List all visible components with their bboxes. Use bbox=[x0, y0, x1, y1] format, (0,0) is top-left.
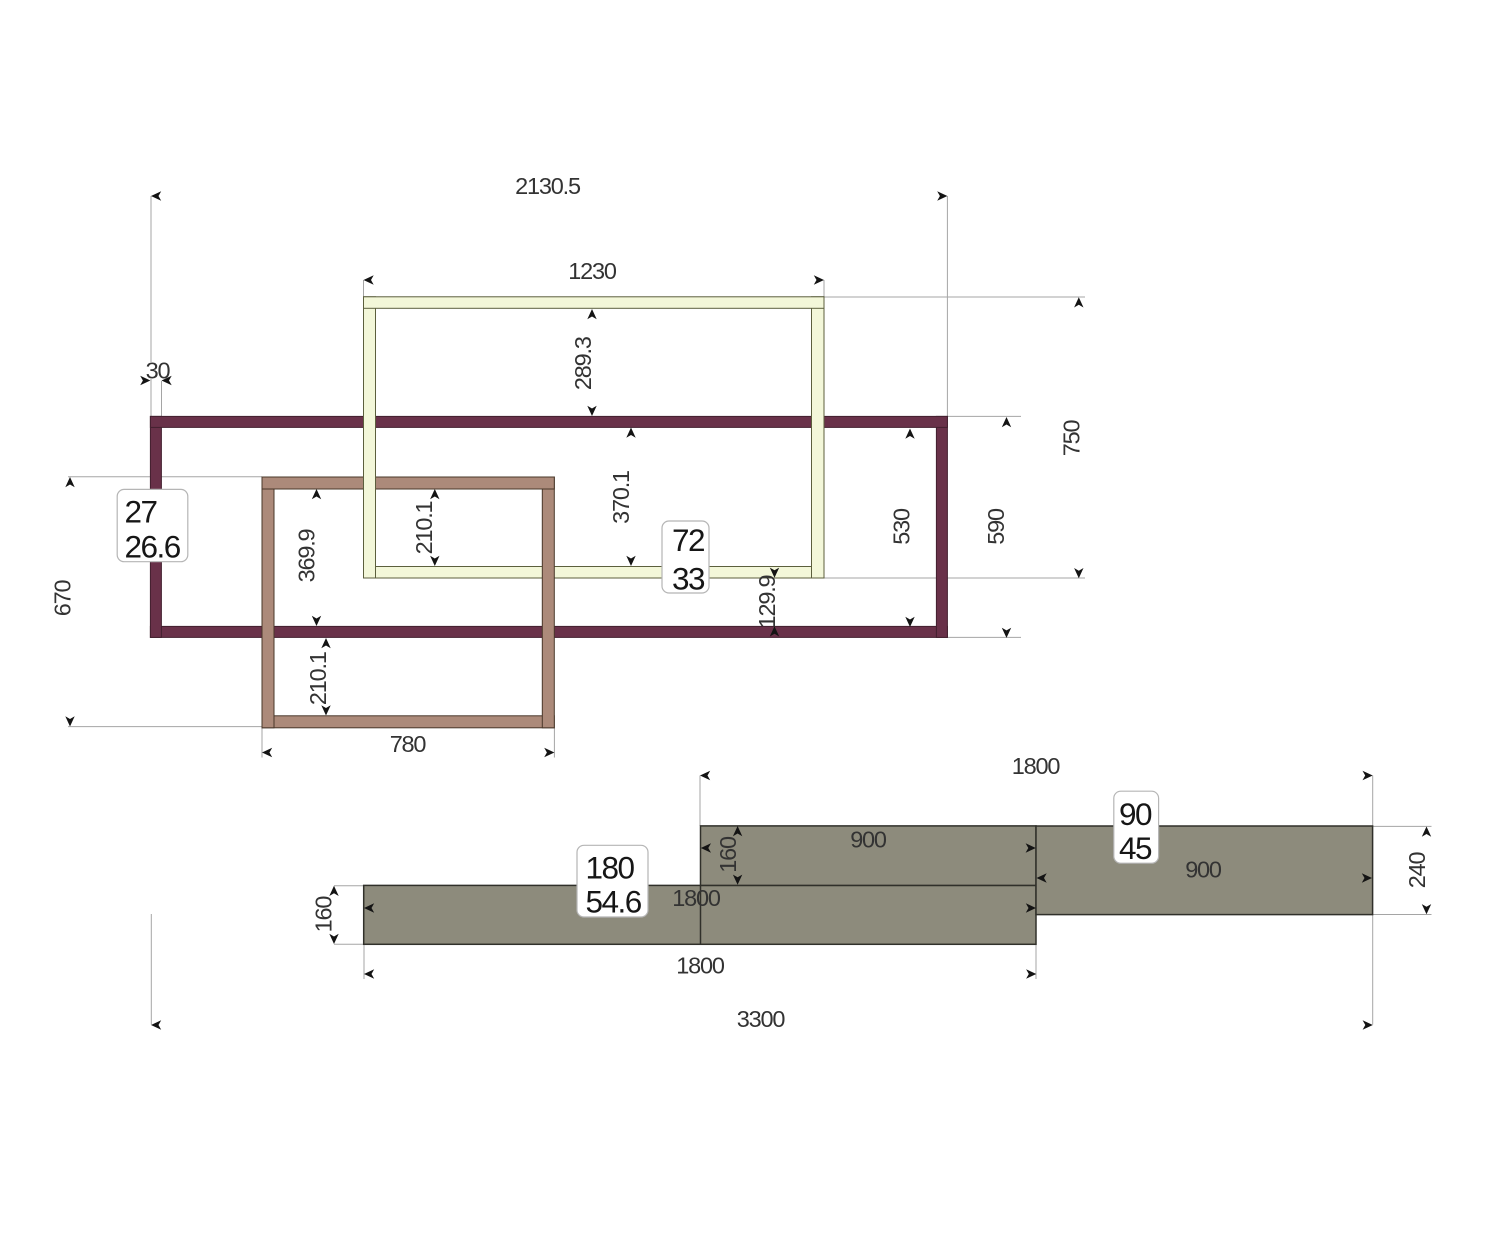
svg-text:369.9: 369.9 bbox=[294, 529, 320, 582]
svg-text:530: 530 bbox=[889, 508, 915, 545]
svg-text:30: 30 bbox=[146, 358, 171, 384]
svg-text:180: 180 bbox=[586, 849, 635, 885]
svg-text:1800: 1800 bbox=[1012, 753, 1061, 779]
svg-text:33: 33 bbox=[672, 561, 705, 597]
svg-text:750: 750 bbox=[1059, 420, 1085, 457]
svg-text:54.6: 54.6 bbox=[586, 884, 642, 920]
svg-text:240: 240 bbox=[1404, 852, 1430, 889]
svg-text:1800: 1800 bbox=[672, 885, 721, 911]
svg-text:780: 780 bbox=[390, 731, 427, 757]
svg-text:289.3: 289.3 bbox=[570, 336, 596, 390]
svg-text:160: 160 bbox=[311, 896, 337, 933]
svg-text:1800: 1800 bbox=[676, 953, 725, 979]
svg-text:370.1: 370.1 bbox=[608, 471, 634, 524]
svg-text:900: 900 bbox=[1185, 857, 1222, 883]
svg-text:900: 900 bbox=[850, 827, 887, 853]
svg-text:2130.5: 2130.5 bbox=[515, 173, 581, 199]
svg-text:90: 90 bbox=[1119, 796, 1152, 832]
svg-text:1230: 1230 bbox=[568, 258, 617, 284]
svg-text:160: 160 bbox=[715, 836, 741, 873]
svg-text:210.1: 210.1 bbox=[305, 652, 331, 705]
svg-text:129.9: 129.9 bbox=[754, 575, 780, 628]
svg-text:670: 670 bbox=[50, 580, 76, 617]
svg-text:45: 45 bbox=[1119, 830, 1152, 866]
svg-text:27: 27 bbox=[125, 494, 157, 530]
svg-text:590: 590 bbox=[983, 508, 1009, 545]
svg-text:210.1: 210.1 bbox=[411, 501, 437, 554]
svg-text:26.6: 26.6 bbox=[125, 528, 181, 564]
svg-text:3300: 3300 bbox=[737, 1006, 786, 1032]
svg-text:72: 72 bbox=[672, 522, 704, 558]
